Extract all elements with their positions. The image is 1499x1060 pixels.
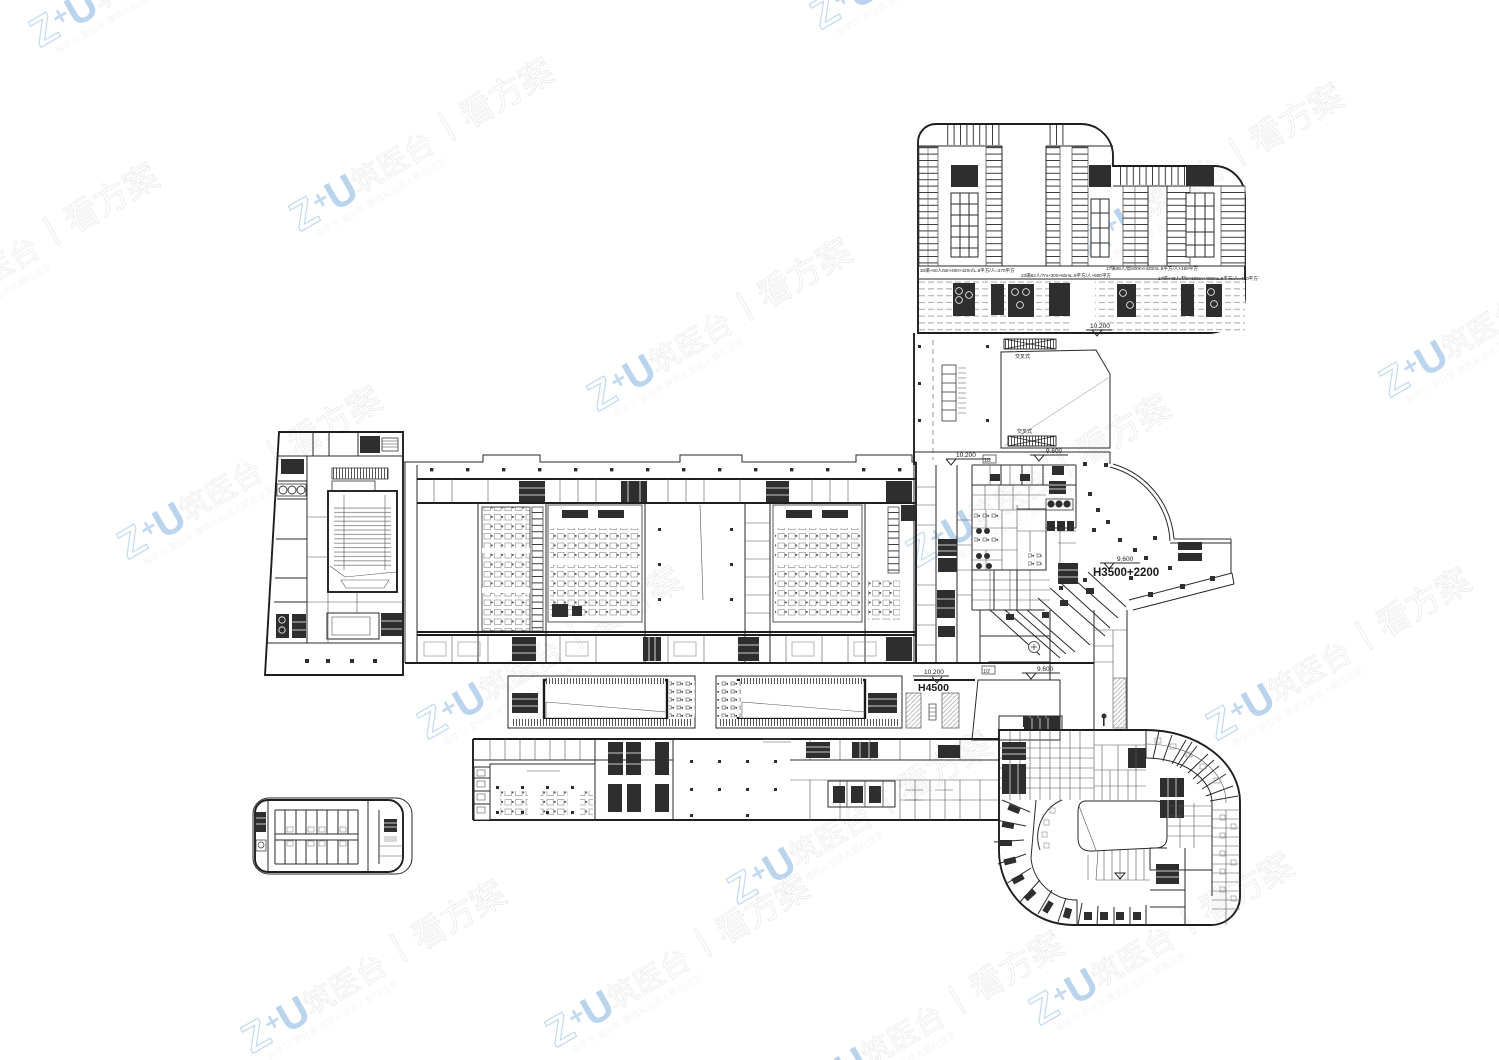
svg-text:9.600: 9.600: [1117, 556, 1134, 563]
svg-text:1/2: 1/2: [983, 669, 990, 675]
svg-text:交叉式: 交叉式: [1017, 428, 1032, 435]
svg-text:H3500+2200: H3500+2200: [1093, 567, 1159, 579]
svg-text:1/2: 1/2: [984, 458, 991, 464]
svg-text:10.200: 10.200: [956, 452, 976, 459]
svg-text:H4500: H4500: [918, 682, 949, 694]
svg-text:23辆62人/7m×300×60mL.9平方/人×900平方: 23辆62人/7m×300×60mL.9平方/人×900平方: [1021, 272, 1111, 279]
svg-text:30辆+60人/50×400×420㎡L.8平方/人=370: 30辆+60人/50×400×420㎡L.8平方/人=370平方: [920, 267, 1015, 274]
svg-text:交叉式: 交叉式: [1015, 353, 1030, 360]
svg-text:10.200: 10.200: [924, 669, 944, 676]
svg-text:9.600: 9.600: [1037, 666, 1054, 673]
svg-text:10.200: 10.200: [1090, 323, 1110, 330]
